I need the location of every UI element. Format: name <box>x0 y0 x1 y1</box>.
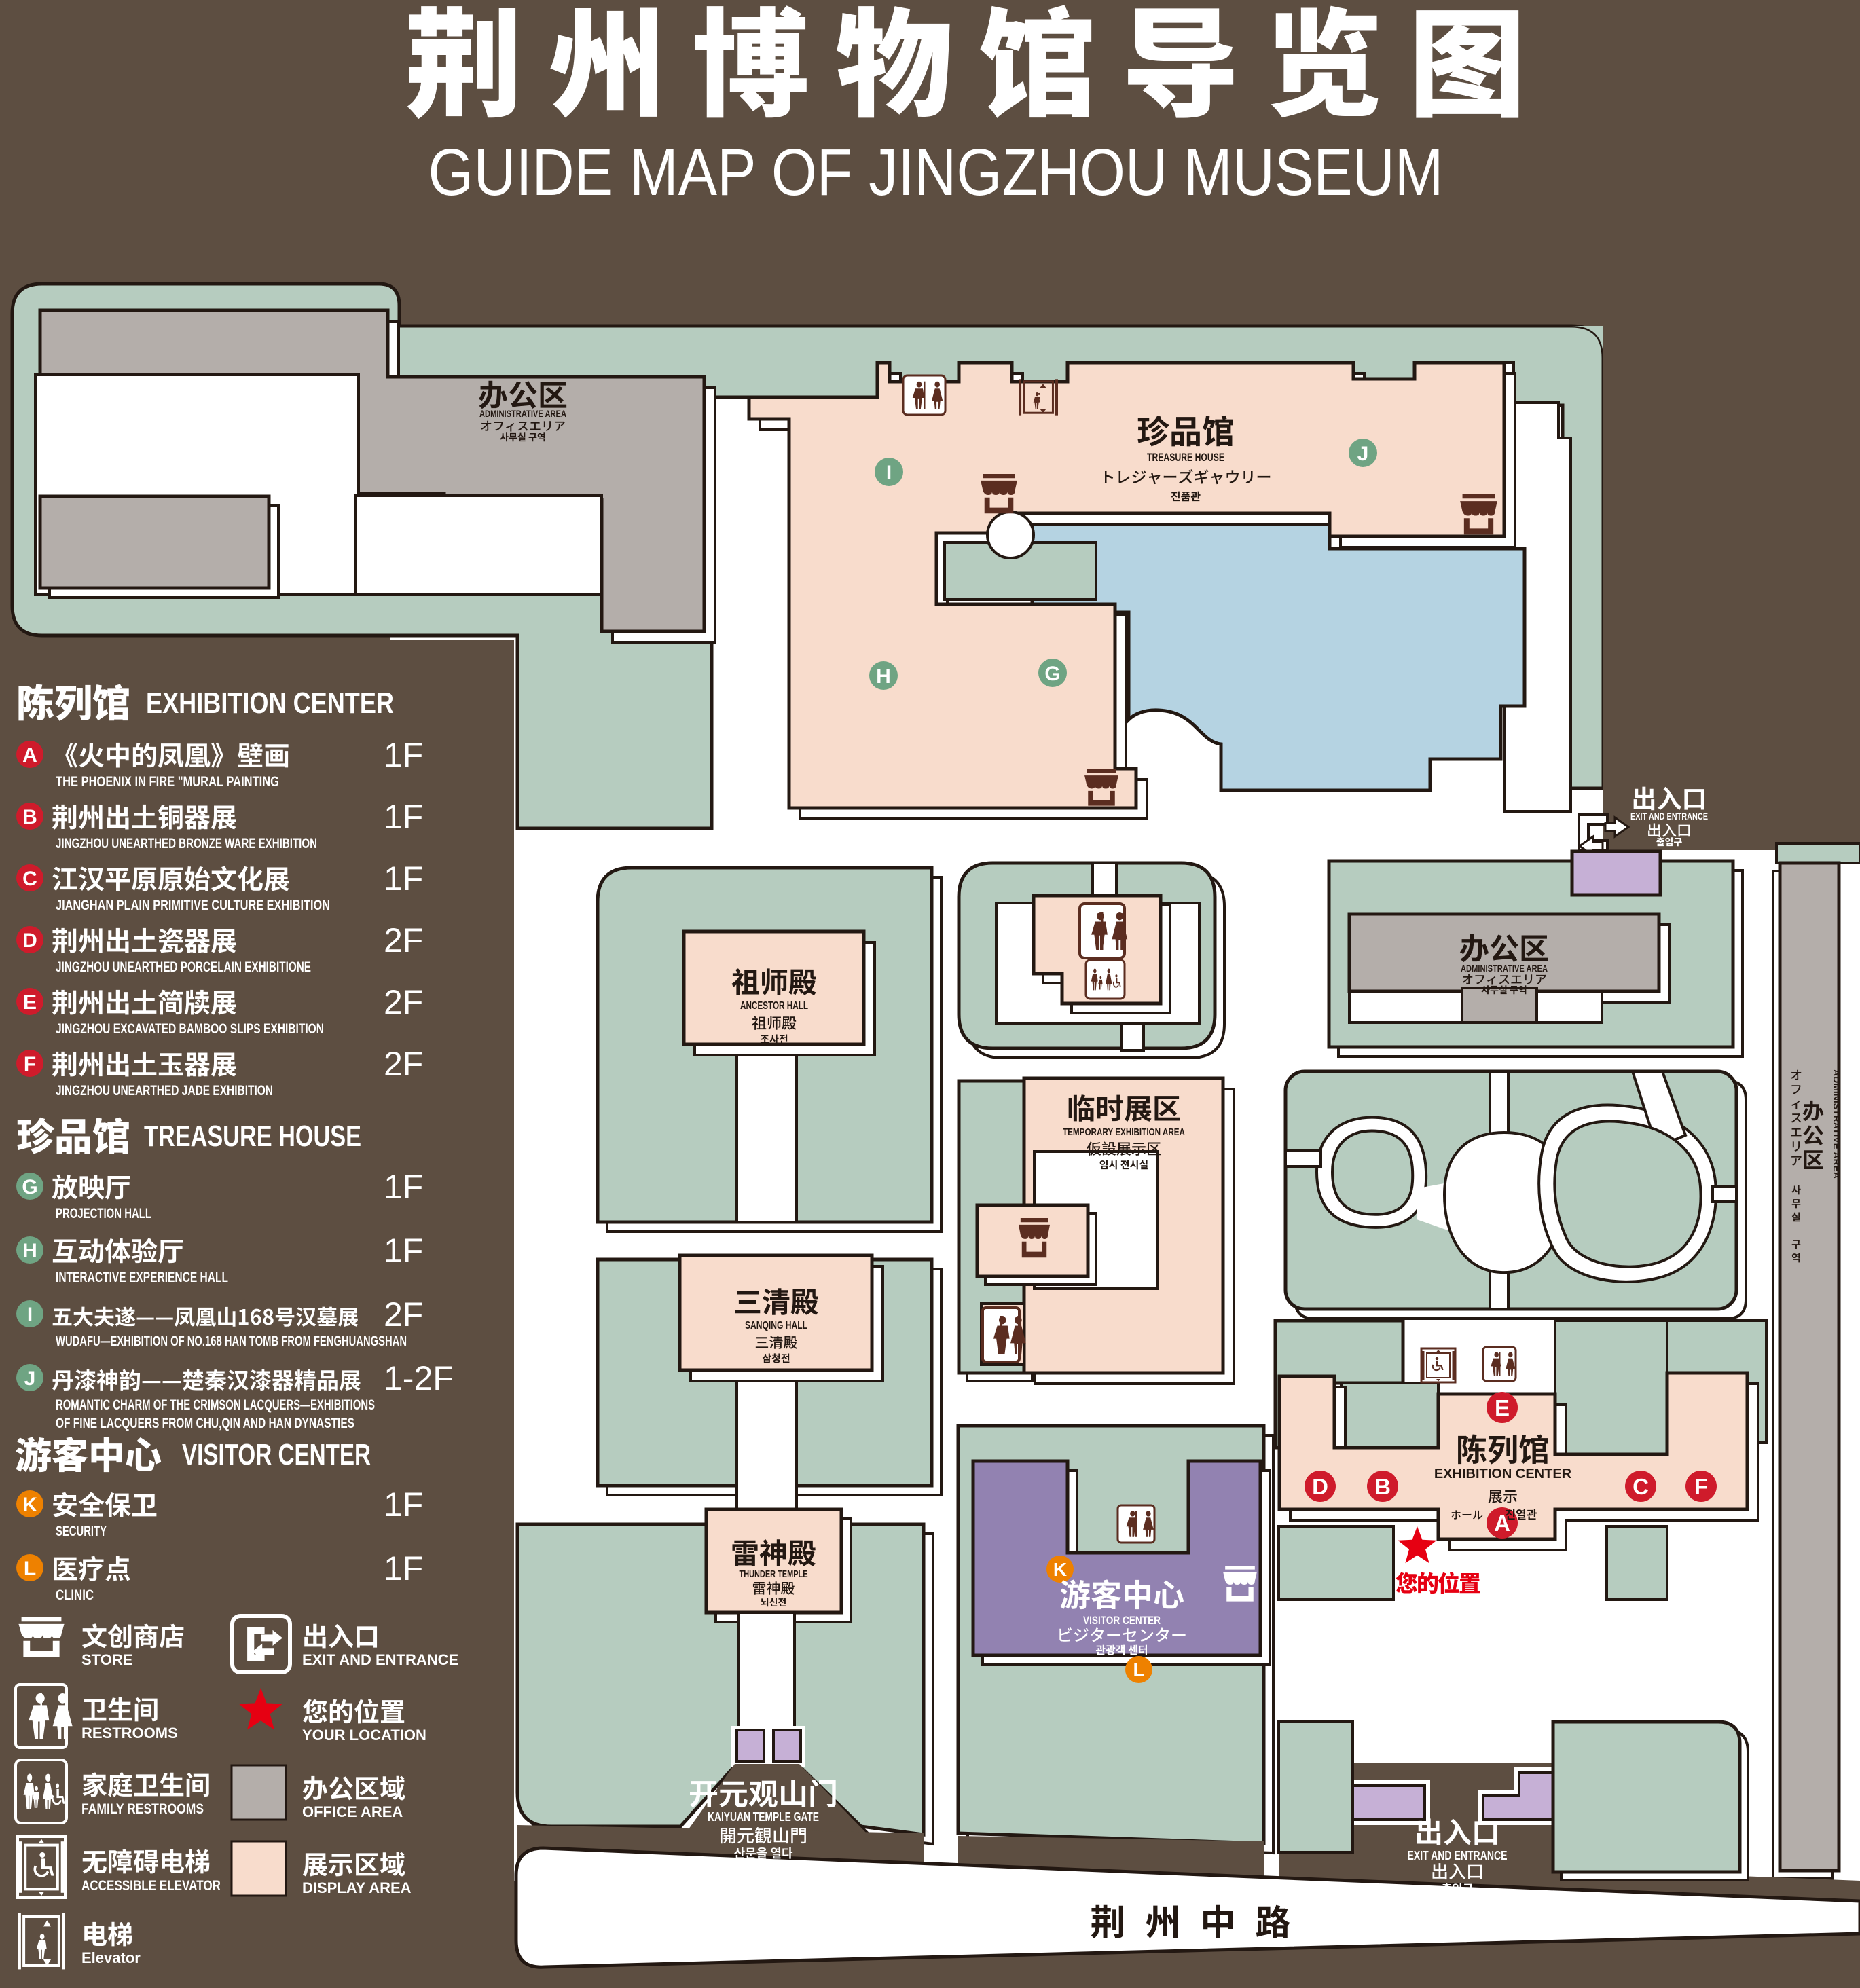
svg-text:EXIT AND ENTRANCE: EXIT AND ENTRANCE <box>1630 811 1708 822</box>
svg-text:I: I <box>886 462 892 484</box>
svg-text:JINGZHOU EXCAVATED BAMBOO SLIP: JINGZHOU EXCAVATED BAMBOO SLIPS EXHIBITI… <box>56 1021 324 1037</box>
svg-text:1-2F: 1-2F <box>384 1359 454 1397</box>
svg-text:TEMPORARY EXHIBITION AREA: TEMPORARY EXHIBITION AREA <box>1063 1126 1185 1138</box>
svg-text:CLINIC: CLINIC <box>56 1587 94 1603</box>
svg-text:STORE: STORE <box>81 1651 132 1668</box>
svg-text:C: C <box>22 868 37 890</box>
svg-text:2F: 2F <box>384 921 423 959</box>
svg-text:2F: 2F <box>384 983 423 1021</box>
svg-text:ACCESSIBLE ELEVATOR: ACCESSIBLE ELEVATOR <box>81 1878 221 1894</box>
svg-text:JINGZHOU UNEARTHED BRONZE WARE: JINGZHOU UNEARTHED BRONZE WARE EXHIBITIO… <box>56 836 317 851</box>
svg-text:DISPLAY AREA: DISPLAY AREA <box>302 1879 412 1896</box>
svg-text:ROMANTIC CHARM OF THE CRIMSON: ROMANTIC CHARM OF THE CRIMSON LACQUERS—E… <box>56 1397 375 1413</box>
svg-text:EXHIBITION CENTER: EXHIBITION CENTER <box>1434 1467 1572 1481</box>
svg-text:ANCESTOR HALL: ANCESTOR HALL <box>740 1000 808 1012</box>
svg-text:1F: 1F <box>384 798 423 836</box>
svg-text:SANQING HALL: SANQING HALL <box>745 1320 807 1331</box>
svg-text:OFFICE AREA: OFFICE AREA <box>302 1803 403 1820</box>
svg-text:VISITOR CENTER: VISITOR CENTER <box>182 1438 371 1471</box>
svg-text:E: E <box>1495 1395 1510 1420</box>
svg-text:1F: 1F <box>384 1549 423 1587</box>
svg-text:EXHIBITION CENTER: EXHIBITION CENTER <box>146 686 394 720</box>
svg-text:L: L <box>24 1558 36 1580</box>
svg-text:1F: 1F <box>384 1232 423 1270</box>
svg-text:1F: 1F <box>384 1486 423 1524</box>
svg-text:INTERACTIVE EXPERIENCE HALL: INTERACTIVE EXPERIENCE HALL <box>56 1270 228 1285</box>
svg-text:THE PHOENIX IN FIRE "MURAL PAI: THE PHOENIX IN FIRE "MURAL PAINTING <box>56 774 279 790</box>
svg-text:KAIYUAN TEMPLE GATE: KAIYUAN TEMPLE GATE <box>708 1810 819 1824</box>
svg-text:VISITOR CENTER: VISITOR CENTER <box>1083 1614 1161 1627</box>
svg-text:J: J <box>1357 443 1369 465</box>
svg-text:B: B <box>1374 1474 1391 1499</box>
svg-text:H: H <box>876 665 891 688</box>
svg-text:PROJECTION HALL: PROJECTION HALL <box>56 1206 151 1221</box>
svg-text:RESTROOMS: RESTROOMS <box>81 1725 178 1742</box>
svg-text:D: D <box>22 929 37 952</box>
svg-text:F: F <box>24 1053 36 1075</box>
svg-text:2F: 2F <box>384 1045 423 1083</box>
svg-text:ADMINISTRATIVE AREA: ADMINISTRATIVE AREA <box>479 408 566 419</box>
svg-text:H: H <box>22 1240 37 1262</box>
svg-text:WUDAFU—EXHIBITION OF NO.168 HA: WUDAFU—EXHIBITION OF NO.168 HAN TOMB FRO… <box>56 1333 407 1349</box>
svg-text:TREASURE HOUSE: TREASURE HOUSE <box>144 1120 361 1153</box>
svg-text:OF FINE LACQUERS FROM CHU,QIN: OF FINE LACQUERS FROM CHU,QIN AND HAN DY… <box>56 1416 354 1431</box>
svg-text:1F: 1F <box>384 736 423 774</box>
svg-text:Elevator: Elevator <box>81 1949 141 1966</box>
svg-text:B: B <box>22 806 37 828</box>
svg-text:1F: 1F <box>384 1168 423 1206</box>
svg-text:D: D <box>1312 1474 1328 1499</box>
svg-text:A: A <box>22 744 37 767</box>
svg-text:ADMINISTRATIVE AREA: ADMINISTRATIVE AREA <box>1831 1069 1842 1179</box>
svg-text:E: E <box>23 991 37 1014</box>
svg-text:K: K <box>22 1494 37 1516</box>
svg-text:JINGZHOU UNEARTHED PORCELAIN E: JINGZHOU UNEARTHED PORCELAIN EXHIBITIONE <box>56 959 311 975</box>
svg-text:G: G <box>1044 663 1060 685</box>
svg-text:L: L <box>1133 1659 1144 1680</box>
svg-text:JIANGHAN PLAIN PRIMITIVE CULTU: JIANGHAN PLAIN PRIMITIVE CULTURE EXHIBIT… <box>56 898 330 913</box>
svg-text:THUNDER TEMPLE: THUNDER TEMPLE <box>740 1568 808 1580</box>
svg-text:TREASURE HOUSE: TREASURE HOUSE <box>1147 451 1224 464</box>
svg-text:ADMINISTRATIVE AREA: ADMINISTRATIVE AREA <box>1461 963 1548 974</box>
svg-text:C: C <box>1633 1474 1649 1499</box>
svg-text:SECURITY: SECURITY <box>56 1524 107 1539</box>
svg-text:JINGZHOU UNEARTHED JADE EXHIBI: JINGZHOU UNEARTHED JADE EXHIBITION <box>56 1083 273 1099</box>
svg-text:YOUR LOCATION: YOUR LOCATION <box>302 1727 426 1744</box>
svg-text:EXIT AND ENTRANCE: EXIT AND ENTRANCE <box>302 1651 458 1668</box>
svg-text:G: G <box>22 1176 37 1198</box>
svg-text:2F: 2F <box>384 1295 423 1333</box>
svg-text:1F: 1F <box>384 860 423 898</box>
svg-text:FAMILY RESTROOMS: FAMILY RESTROOMS <box>81 1801 204 1817</box>
svg-text:K: K <box>1053 1559 1067 1580</box>
svg-text:F: F <box>1694 1474 1708 1499</box>
svg-text:GUIDE MAP OF JINGZHOU MUSEUM: GUIDE MAP OF JINGZHOU MUSEUM <box>428 135 1444 209</box>
svg-text:I: I <box>27 1304 33 1326</box>
svg-text:EXIT AND ENTRANCE: EXIT AND ENTRANCE <box>1408 1849 1508 1862</box>
svg-text:J: J <box>24 1367 36 1390</box>
